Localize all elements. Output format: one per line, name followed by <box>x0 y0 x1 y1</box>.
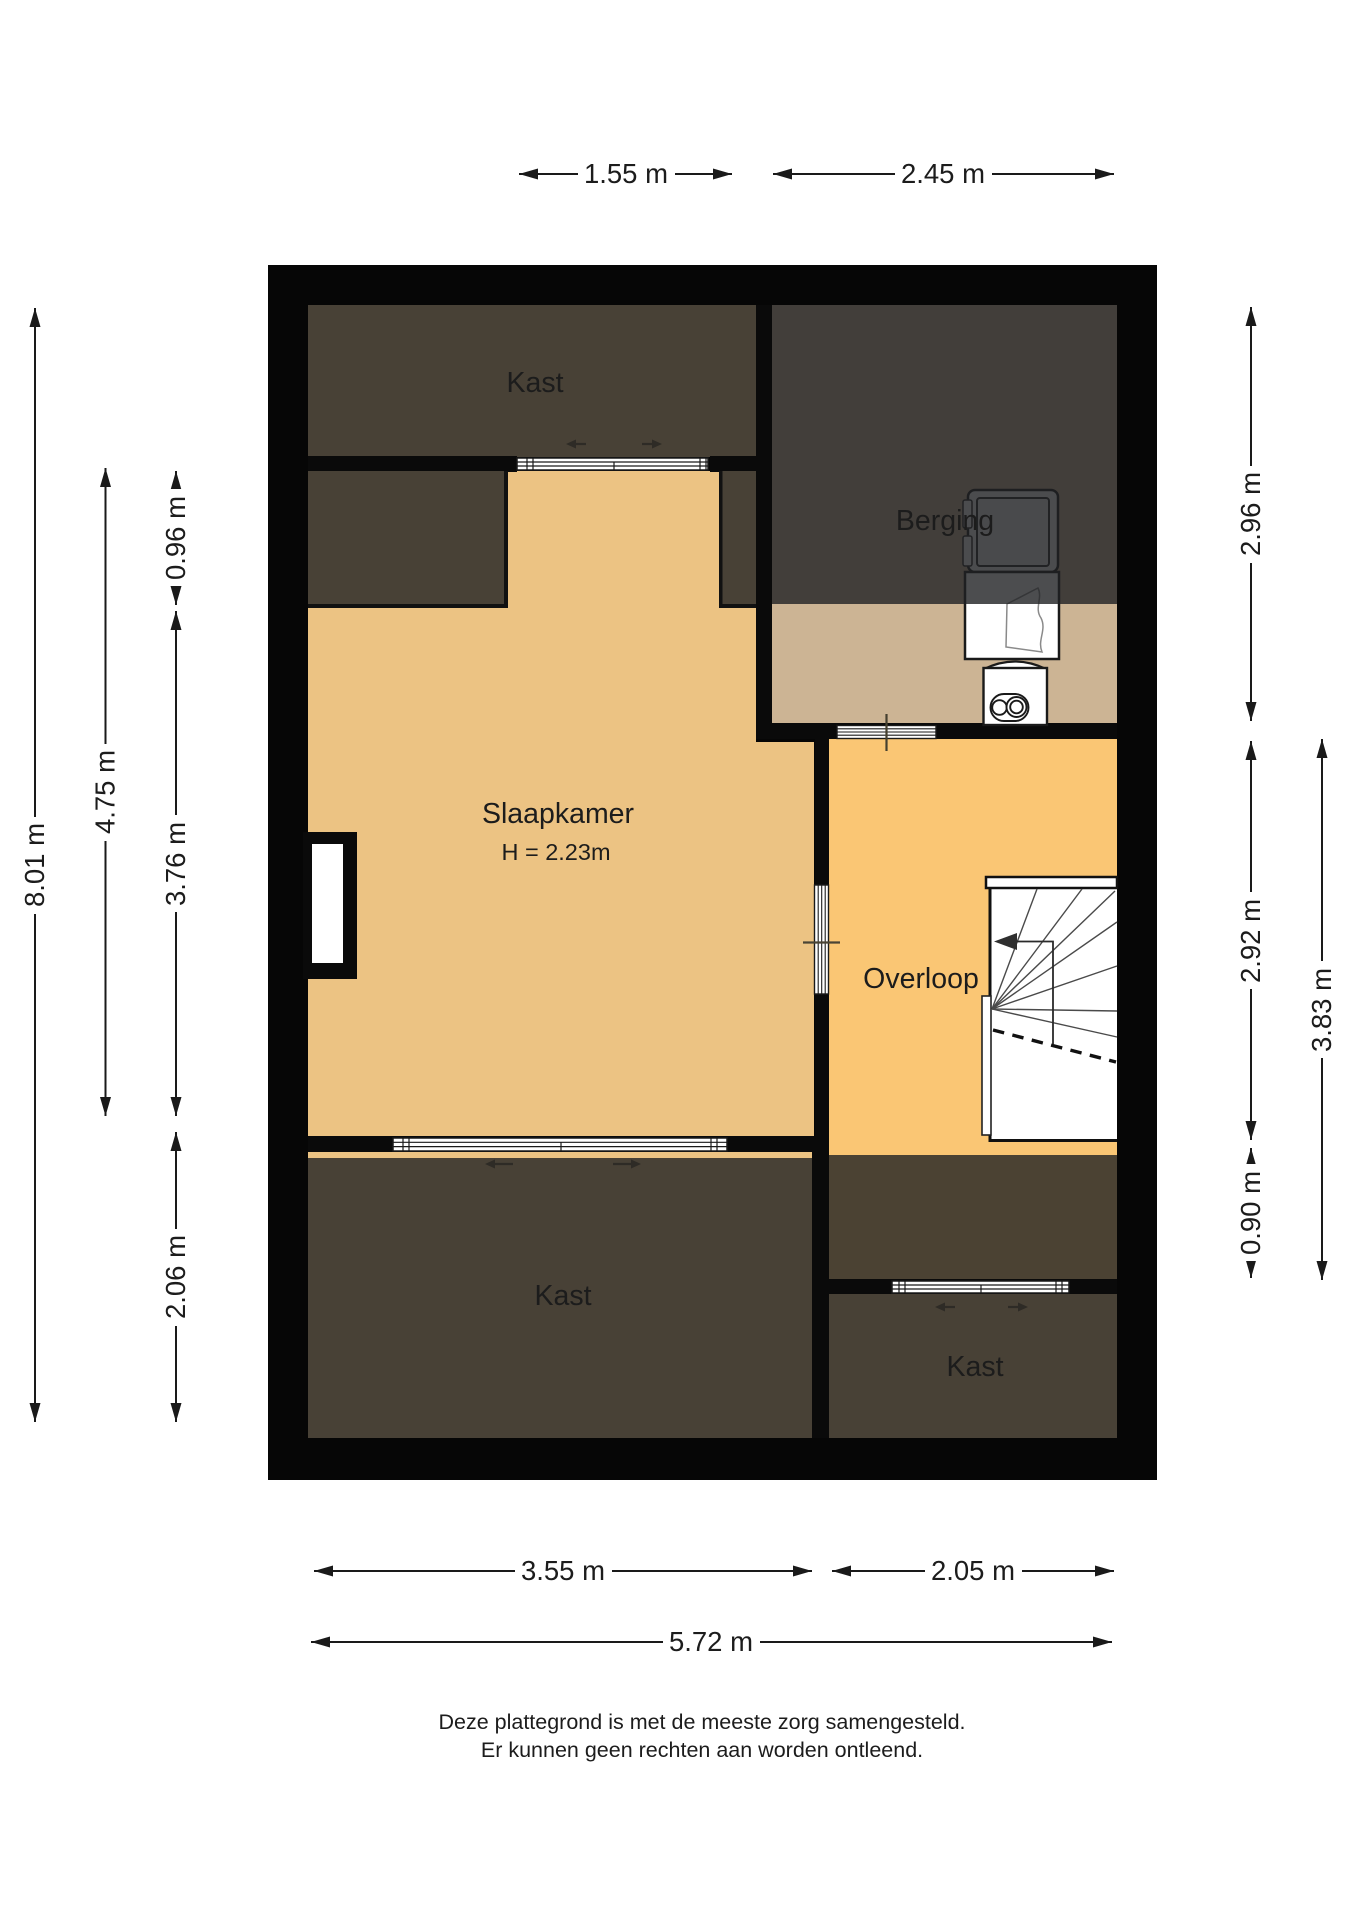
svg-text:3.55 m: 3.55 m <box>521 1555 605 1586</box>
svg-text:Deze plattegrond is met de mee: Deze plattegrond is met de meeste zorg s… <box>438 1710 965 1734</box>
svg-text:1.55 m: 1.55 m <box>584 158 668 189</box>
svg-text:Er kunnen geen rechten aan wor: Er kunnen geen rechten aan worden ontlee… <box>481 1738 923 1762</box>
svg-text:2.92 m: 2.92 m <box>1235 899 1266 983</box>
svg-text:Kast: Kast <box>946 1351 1003 1383</box>
svg-text:5.72 m: 5.72 m <box>669 1626 753 1657</box>
svg-text:3.76 m: 3.76 m <box>160 822 191 906</box>
svg-text:8.01 m: 8.01 m <box>19 823 50 907</box>
svg-text:Berging: Berging <box>896 505 994 537</box>
svg-text:3.83 m: 3.83 m <box>1306 968 1337 1052</box>
svg-text:2.06 m: 2.06 m <box>160 1235 191 1319</box>
svg-text:Slaapkamer: Slaapkamer <box>482 798 635 830</box>
svg-text:H = 2.23m: H = 2.23m <box>501 839 610 865</box>
svg-text:4.75 m: 4.75 m <box>90 750 121 834</box>
svg-text:2.45 m: 2.45 m <box>901 158 985 189</box>
svg-text:Overloop: Overloop <box>863 963 979 995</box>
svg-text:0.90 m: 0.90 m <box>1235 1171 1266 1255</box>
svg-text:Kast: Kast <box>506 367 563 399</box>
svg-text:2.05 m: 2.05 m <box>931 1555 1015 1586</box>
svg-text:0.96 m: 0.96 m <box>160 496 191 580</box>
svg-text:Kast: Kast <box>534 1280 591 1312</box>
svg-text:2.96 m: 2.96 m <box>1235 472 1266 556</box>
